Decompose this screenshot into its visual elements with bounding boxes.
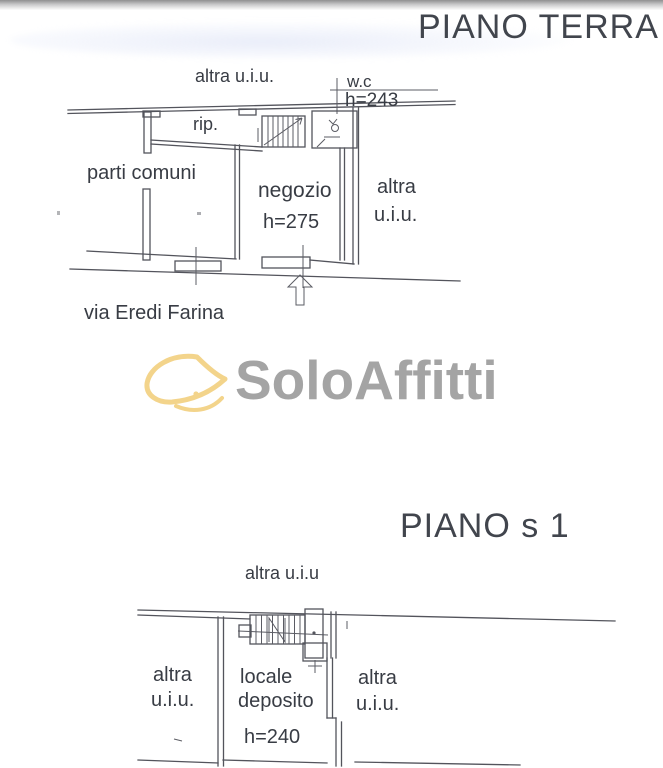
label-street-name: via Eredi Farina [84, 303, 224, 323]
label-storage-room-line1: locale [240, 667, 292, 687]
scanned-floor-plan-page: PIANO TERRA PIANO s 1 [0, 0, 663, 768]
label-wc-height: h=243 [345, 91, 398, 110]
label-storage-room-line2: deposito [238, 691, 314, 711]
label-right-unit-basement-line1: altra [358, 668, 397, 688]
label-closet: rip. [193, 115, 218, 133]
label-wc: w.c [347, 73, 372, 90]
basement-title: PIANO s 1 [400, 507, 570, 546]
label-storage-height: h=240 [244, 727, 300, 747]
label-left-unit-basement-line2: u.i.u. [151, 690, 194, 710]
soloaffitti-leaf-icon [140, 350, 232, 420]
label-shop-height: h=275 [263, 212, 319, 232]
label-left-unit-basement-line1: altra [153, 665, 192, 685]
label-shop: negozio [258, 180, 332, 201]
label-upper-unit-gf: altra u.i.u. [195, 67, 274, 85]
soloaffitti-logo-text: SoloAffitti [235, 348, 498, 412]
ground-floor-title: PIANO TERRA [418, 8, 659, 47]
label-upper-unit-basement: altra u.i.u [245, 564, 319, 582]
label-right-unit-gf-line1: altra [377, 177, 416, 197]
label-common-areas: parti comuni [87, 163, 196, 183]
label-right-unit-gf-line2: u.i.u. [374, 205, 417, 225]
soloaffitti-logo: SoloAffitti [140, 346, 550, 422]
label-right-unit-basement-line2: u.i.u. [356, 694, 399, 714]
